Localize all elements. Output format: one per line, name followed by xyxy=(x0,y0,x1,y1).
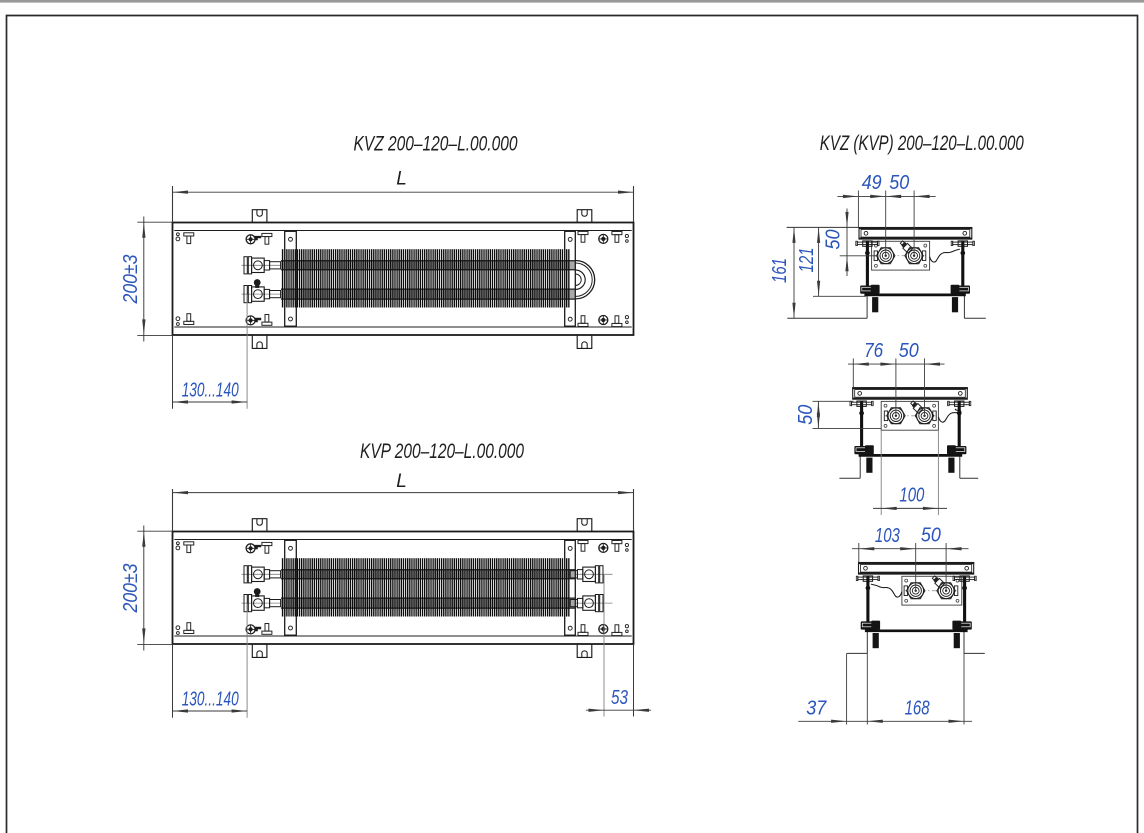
svg-text:KVP 200–120–L.00.000: KVP 200–120–L.00.000 xyxy=(360,440,524,463)
svg-text:50: 50 xyxy=(795,405,817,425)
svg-text:100: 100 xyxy=(899,485,924,507)
svg-text:103: 103 xyxy=(875,525,900,547)
svg-text:50: 50 xyxy=(899,340,919,362)
svg-text:50: 50 xyxy=(921,525,941,547)
svg-text:L: L xyxy=(396,471,407,492)
svg-text:53: 53 xyxy=(611,687,628,709)
svg-text:49: 49 xyxy=(862,172,882,194)
svg-text:130...140: 130...140 xyxy=(182,688,239,710)
svg-text:200±3: 200±3 xyxy=(120,564,142,614)
svg-text:121: 121 xyxy=(796,248,818,273)
svg-text:50: 50 xyxy=(822,230,844,250)
svg-text:200±3: 200±3 xyxy=(120,255,142,305)
svg-text:KVZ (KVP) 200–120–L.00.000: KVZ (KVP) 200–120–L.00.000 xyxy=(820,132,1024,155)
svg-text:168: 168 xyxy=(905,698,930,720)
svg-text:KVZ 200–120–L.00.000: KVZ 200–120–L.00.000 xyxy=(354,133,518,156)
svg-text:37: 37 xyxy=(806,698,827,720)
svg-text:130...140: 130...140 xyxy=(182,379,239,401)
svg-text:L: L xyxy=(396,169,407,190)
svg-text:50: 50 xyxy=(889,172,909,194)
svg-text:161: 161 xyxy=(769,258,791,283)
svg-text:76: 76 xyxy=(864,340,884,362)
